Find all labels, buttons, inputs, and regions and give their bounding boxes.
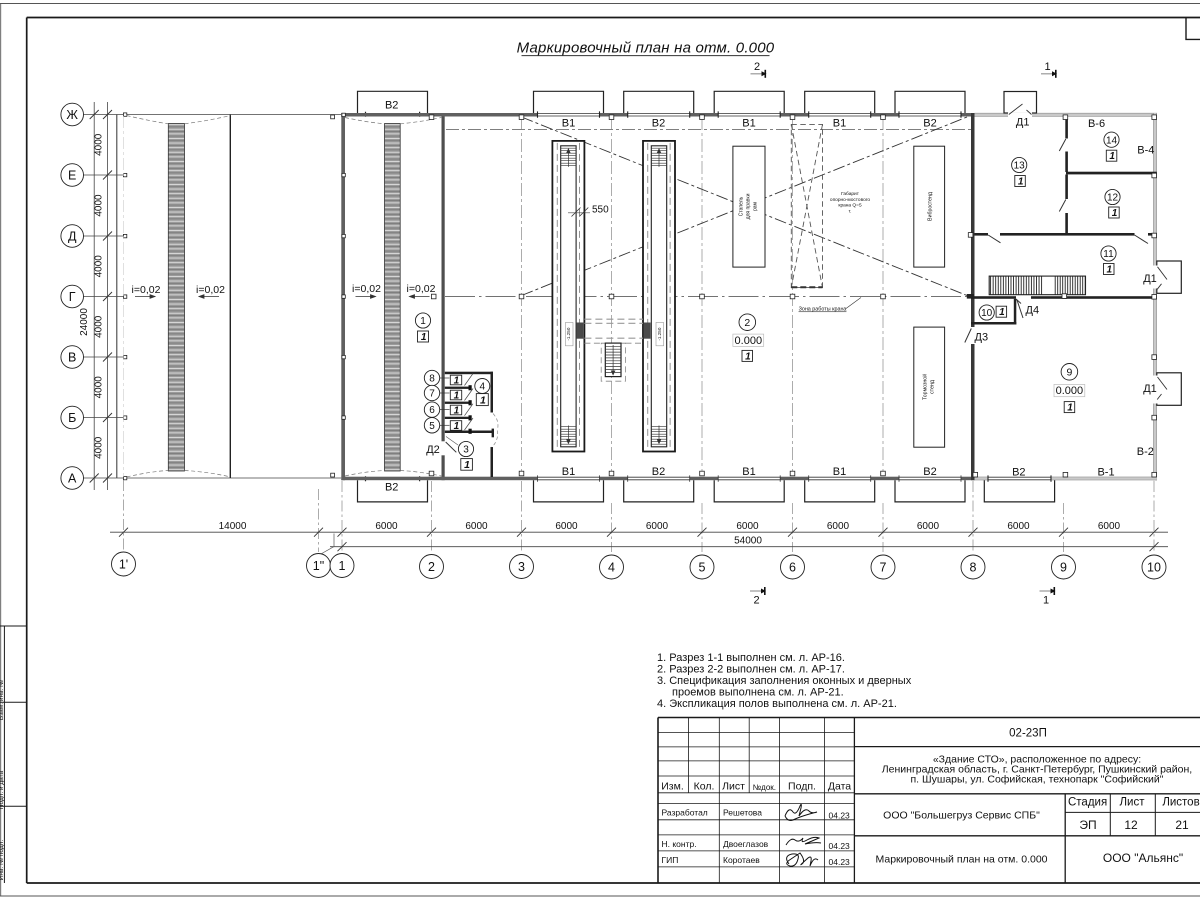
svg-text:Б: Б <box>68 411 76 425</box>
svg-text:Взам. инв. №: Взам. инв. № <box>0 680 5 720</box>
svg-text:1: 1 <box>999 307 1005 318</box>
svg-text:6000: 6000 <box>555 521 578 532</box>
svg-text:В1: В1 <box>562 118 575 130</box>
svg-text:Д3: Д3 <box>975 332 989 344</box>
svg-text:В2: В2 <box>652 466 665 478</box>
svg-text:Лист: Лист <box>722 780 745 792</box>
svg-text:ООО "Альянс": ООО "Альянс" <box>1103 851 1183 865</box>
svg-text:В: В <box>68 351 76 365</box>
svg-text:6000: 6000 <box>646 521 669 532</box>
svg-text:для правки: для правки <box>746 193 752 219</box>
svg-text:10: 10 <box>981 308 993 319</box>
svg-text:Подп.: Подп. <box>788 780 816 792</box>
svg-text:стенд: стенд <box>930 380 936 394</box>
svg-text:1: 1 <box>421 332 427 343</box>
svg-text:-1.250: -1.250 <box>657 327 662 340</box>
svg-text:1: 1 <box>454 376 460 387</box>
svg-text:В-4: В-4 <box>1137 145 1154 157</box>
svg-text:1: 1 <box>454 391 460 402</box>
svg-text:11: 11 <box>1103 249 1114 260</box>
svg-text:1': 1' <box>119 558 128 572</box>
svg-text:24000: 24000 <box>79 308 90 336</box>
svg-text:0.000: 0.000 <box>1056 385 1084 397</box>
svg-text:Коротаев: Коротаев <box>723 855 760 865</box>
svg-text:1: 1 <box>480 394 486 406</box>
svg-text:Д1: Д1 <box>1143 273 1157 285</box>
svg-text:крана Q=5: крана Q=5 <box>838 203 862 209</box>
svg-text:54000: 54000 <box>734 536 762 547</box>
svg-text:i=0,02: i=0,02 <box>196 284 225 296</box>
svg-text:Инв. № подл.: Инв. № подл. <box>0 840 5 881</box>
svg-text:2: 2 <box>753 595 759 607</box>
svg-text:В2: В2 <box>923 118 936 130</box>
svg-text:Е: Е <box>68 169 76 183</box>
svg-text:1: 1 <box>745 351 751 362</box>
svg-text:1: 1 <box>454 406 460 417</box>
svg-text:12: 12 <box>1124 818 1138 832</box>
svg-text:i=0,02: i=0,02 <box>407 283 436 295</box>
svg-text:4000: 4000 <box>93 133 104 156</box>
svg-text:6: 6 <box>429 405 435 416</box>
svg-text:2. Разрез 2-2 выполнен см. л.: 2. Разрез 2-2 выполнен см. л. АР-17. <box>657 664 845 676</box>
svg-text:1: 1 <box>464 459 470 471</box>
svg-text:4: 4 <box>608 561 615 575</box>
svg-text:8: 8 <box>970 561 977 575</box>
svg-text:8: 8 <box>429 374 435 385</box>
svg-text:В1: В1 <box>562 466 575 478</box>
svg-text:1: 1 <box>1067 403 1073 414</box>
svg-text:04.23: 04.23 <box>829 841 851 851</box>
svg-text:550: 550 <box>592 205 609 216</box>
svg-text:т.: т. <box>849 209 852 214</box>
svg-text:Маркировочный план на отм. 0.0: Маркировочный план на отм. 0.000 <box>875 853 1047 865</box>
svg-text:№док.: №док. <box>753 783 776 792</box>
svg-text:12: 12 <box>1107 193 1119 204</box>
svg-text:ЭП: ЭП <box>1079 818 1096 832</box>
svg-text:В1: В1 <box>742 118 755 130</box>
svg-text:3: 3 <box>463 445 469 456</box>
svg-text:6000: 6000 <box>736 521 759 532</box>
svg-text:Вибростенд: Вибростенд <box>928 192 934 221</box>
svg-text:Лист: Лист <box>1120 796 1146 808</box>
svg-text:5: 5 <box>699 561 706 575</box>
svg-text:В-6: В-6 <box>1088 118 1105 130</box>
svg-text:Зона работы крана: Зона работы крана <box>799 307 847 313</box>
svg-text:7: 7 <box>429 389 435 400</box>
svg-text:4000: 4000 <box>93 436 104 459</box>
svg-text:4000: 4000 <box>93 194 104 217</box>
svg-text:04.23: 04.23 <box>829 857 851 867</box>
svg-text:1: 1 <box>1018 177 1024 188</box>
svg-text:опорно-мостового: опорно-мостового <box>830 198 870 203</box>
svg-text:1: 1 <box>420 316 426 327</box>
svg-text:5: 5 <box>429 421 435 432</box>
svg-text:Листов: Листов <box>1162 796 1199 808</box>
svg-text:1: 1 <box>339 559 346 573</box>
svg-text:Д1: Д1 <box>1143 383 1157 395</box>
svg-text:2: 2 <box>744 317 750 329</box>
svg-text:i=0,02: i=0,02 <box>132 284 161 296</box>
svg-text:3. Спецификация заполнения око: 3. Спецификация заполнения оконных и две… <box>657 675 912 687</box>
svg-text:1": 1" <box>313 559 324 573</box>
svg-text:Тормозной: Тормозной <box>922 374 929 400</box>
svg-text:1: 1 <box>1109 151 1115 162</box>
svg-text:6000: 6000 <box>375 521 398 532</box>
svg-text:6000: 6000 <box>1098 521 1121 532</box>
svg-text:проемов выполнена см. л. АР-21: проемов выполнена см. л. АР-21. <box>672 687 844 699</box>
svg-text:6: 6 <box>789 561 796 575</box>
svg-text:В2: В2 <box>652 118 665 130</box>
svg-text:9: 9 <box>1060 561 1067 575</box>
svg-text:1: 1 <box>1043 595 1049 607</box>
svg-text:Кол.: Кол. <box>694 780 715 792</box>
svg-text:В-2: В-2 <box>1137 446 1154 458</box>
svg-text:6000: 6000 <box>1007 521 1030 532</box>
svg-text:В1: В1 <box>742 466 755 478</box>
svg-text:14000: 14000 <box>219 521 247 532</box>
svg-text:В1: В1 <box>833 118 846 130</box>
svg-text:10: 10 <box>1147 561 1161 575</box>
svg-text:Габарит: Габарит <box>841 191 860 197</box>
svg-text:4000: 4000 <box>93 376 104 399</box>
svg-text:Подп. и дата: Подп. и дата <box>0 770 5 809</box>
svg-text:i=0,02: i=0,02 <box>352 283 381 295</box>
svg-text:В2: В2 <box>923 466 936 478</box>
svg-text:ООО "Большегруз Сервис СПБ": ООО "Большегруз Сервис СПБ" <box>883 810 1040 822</box>
svg-text:Дата: Дата <box>828 780 851 792</box>
svg-text:Д: Д <box>68 230 77 244</box>
svg-text:3: 3 <box>518 560 525 574</box>
svg-text:04.23: 04.23 <box>829 811 851 821</box>
svg-text:9: 9 <box>1066 367 1072 379</box>
svg-text:13: 13 <box>1014 161 1026 172</box>
svg-text:02-23П: 02-23П <box>1009 728 1047 740</box>
svg-text:4. Экспликация полов выполнена: 4. Экспликация полов выполнена см. л. АР… <box>657 698 897 710</box>
svg-text:14: 14 <box>1106 135 1118 146</box>
svg-text:6000: 6000 <box>827 521 850 532</box>
svg-text:В2: В2 <box>385 100 398 112</box>
svg-text:Стапель: Стапель <box>739 196 745 216</box>
svg-text:1: 1 <box>1112 208 1118 219</box>
svg-text:4000: 4000 <box>93 315 104 338</box>
svg-text:Ж: Ж <box>66 108 78 122</box>
svg-text:Н. контр.: Н. контр. <box>662 839 697 849</box>
svg-text:рам: рам <box>753 201 759 211</box>
svg-text:7: 7 <box>880 561 887 575</box>
svg-text:2: 2 <box>754 61 760 73</box>
svg-text:6000: 6000 <box>465 521 488 532</box>
svg-text:В2: В2 <box>385 482 398 494</box>
svg-text:-1.250: -1.250 <box>566 327 571 340</box>
svg-text:1: 1 <box>454 421 460 432</box>
svg-text:2: 2 <box>428 560 435 574</box>
svg-text:Д1: Д1 <box>1016 117 1030 129</box>
svg-text:6000: 6000 <box>917 521 940 532</box>
svg-text:А: А <box>68 472 77 486</box>
svg-text:4000: 4000 <box>93 255 104 278</box>
svg-text:ГИП: ГИП <box>662 855 679 865</box>
svg-text:1. Разрез 1-1 выполнен см. л.: 1. Разрез 1-1 выполнен см. л. АР-16. <box>657 652 845 664</box>
svg-text:Изм.: Изм. <box>661 780 684 792</box>
svg-text:4: 4 <box>480 382 486 393</box>
svg-text:Г: Г <box>69 290 76 304</box>
svg-text:В-1: В-1 <box>1097 467 1114 479</box>
svg-text:21: 21 <box>1175 818 1189 832</box>
svg-text:1: 1 <box>1107 265 1113 276</box>
svg-text:Двоеглазов: Двоеглазов <box>723 839 769 849</box>
svg-text:Д2: Д2 <box>426 444 440 456</box>
svg-text:Стадия: Стадия <box>1068 796 1107 808</box>
svg-text:Решетова: Решетова <box>723 808 762 818</box>
svg-text:В1: В1 <box>833 466 846 478</box>
svg-text:Маркировочный план на отм. 0.0: Маркировочный план на отм. 0.000 <box>517 40 775 57</box>
svg-text:Д4: Д4 <box>1026 305 1040 317</box>
svg-text:1: 1 <box>1044 61 1050 73</box>
svg-text:0.000: 0.000 <box>735 335 763 347</box>
svg-text:Разработал: Разработал <box>662 808 708 818</box>
svg-text:п. Шушары, ул. Софийская, техн: п. Шушары, ул. Софийская, технопарк "Соф… <box>911 773 1164 785</box>
